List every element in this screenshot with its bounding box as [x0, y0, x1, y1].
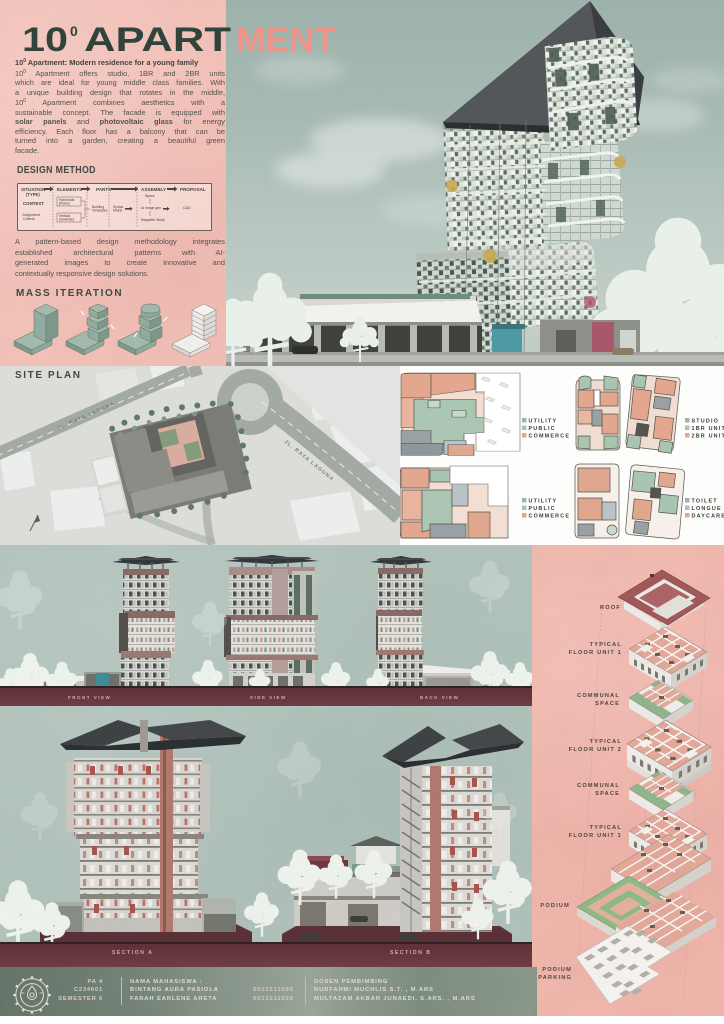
svg-text:Space: Space: [145, 194, 155, 198]
svg-text:COMMUNAL: COMMUNAL: [577, 693, 620, 699]
svg-text:ELEMENTS: ELEMENTS: [57, 187, 82, 192]
svg-text:UTILITY: UTILITY: [529, 418, 558, 424]
svg-text:1BR UNIT: 1BR UNIT: [692, 426, 724, 432]
svg-text:(laminate): (laminate): [59, 217, 74, 221]
svg-text:PODIUM: PODIUM: [542, 967, 572, 973]
svg-text:0: 0: [70, 23, 78, 39]
svg-text:FLOOR UNIT 1: FLOOR UNIT 1: [569, 650, 622, 656]
svg-text:(TYPE): (TYPE): [26, 192, 40, 197]
svg-text:Matrix: Matrix: [113, 209, 123, 213]
svg-text:FLOOR UNIT 1: FLOOR UNIT 1: [569, 833, 622, 839]
svg-text:SPACE: SPACE: [595, 701, 620, 707]
svg-text:JL. RAYA LAGUNA: JL. RAYA LAGUNA: [56, 401, 116, 432]
svg-text:AI image gen: AI image gen: [141, 206, 161, 210]
svg-text:ROOF: ROOF: [600, 605, 621, 611]
svg-text:DAYCARE: DAYCARE: [692, 513, 724, 519]
svg-text:10: 10: [22, 21, 68, 59]
svg-text:COMMERCE: COMMERCE: [529, 433, 571, 439]
svg-text:SPACE: SPACE: [595, 791, 620, 797]
svg-text:CONTEXT: CONTEXT: [23, 201, 44, 206]
svg-text:Criteria: Criteria: [23, 217, 35, 221]
svg-text:PROPOSAL: PROPOSAL: [180, 187, 206, 192]
svg-text:Maquette Study: Maquette Study: [141, 218, 165, 222]
svg-text:PODIUM: PODIUM: [540, 903, 570, 909]
svg-text:Templates: Templates: [92, 209, 108, 213]
svg-text:FLOOR UNIT 2: FLOOR UNIT 2: [569, 747, 622, 753]
svg-text:COMMERCE: COMMERCE: [529, 513, 571, 519]
svg-text:APART: APART: [84, 21, 231, 59]
svg-text:COMMUNAL: COMMUNAL: [577, 783, 620, 789]
svg-text:PUBLIC: PUBLIC: [529, 506, 556, 512]
svg-text:LONGUE: LONGUE: [692, 506, 722, 512]
svg-text:TOILET: TOILET: [692, 498, 718, 504]
svg-text:2BR UNIT: 2BR UNIT: [692, 433, 724, 439]
svg-text:STUDIO: STUDIO: [692, 418, 720, 424]
svg-text:TYPICAL: TYPICAL: [590, 825, 622, 831]
svg-text:(Plans): (Plans): [59, 201, 70, 205]
svg-text:MENT: MENT: [236, 21, 336, 59]
svg-text:ASSEMBLY: ASSEMBLY: [141, 187, 166, 192]
svg-text:TYPICAL: TYPICAL: [590, 739, 622, 745]
svg-text:UTILITY: UTILITY: [529, 498, 558, 504]
svg-text:PUBLIC: PUBLIC: [529, 426, 556, 432]
svg-text:CAD: CAD: [183, 206, 191, 210]
svg-text:TYPICAL: TYPICAL: [590, 642, 622, 648]
svg-text:PARKING: PARKING: [538, 975, 572, 981]
